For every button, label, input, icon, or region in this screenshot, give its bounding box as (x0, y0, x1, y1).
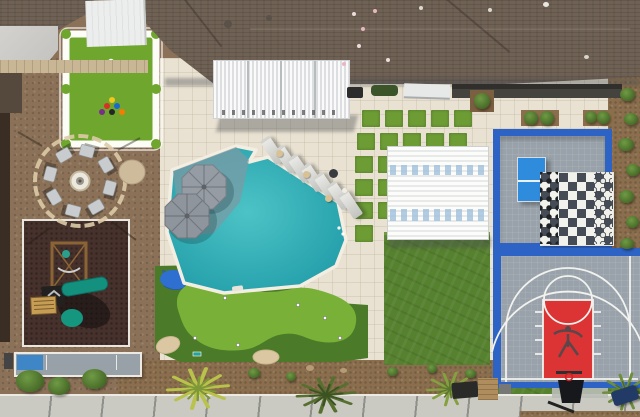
shrub (82, 369, 107, 389)
lawn-billiards-table (60, 28, 162, 150)
roof-ornament (386, 58, 390, 62)
deck-drain (342, 188, 347, 193)
side-table (303, 171, 310, 178)
perimeter-bush (624, 113, 638, 125)
perimeter-bush (626, 216, 639, 228)
roof-vent (419, 6, 423, 10)
storage-box (499, 384, 511, 394)
roof-ornament (373, 9, 377, 13)
roof-vent (266, 15, 272, 21)
roof-ornament (361, 27, 365, 31)
roof-vent (543, 2, 549, 7)
planter-bush (540, 111, 554, 125)
shrub (387, 367, 398, 376)
perimeter-bush (626, 164, 640, 176)
perimeter-bush (619, 190, 634, 203)
shrub (16, 370, 44, 392)
palm-tree (158, 360, 238, 417)
boulder (119, 160, 145, 184)
brick-pillar (478, 378, 498, 400)
roof-ornament (342, 62, 346, 66)
planter-bush (524, 111, 538, 125)
roof-vent (584, 55, 589, 59)
garden-cart (451, 381, 478, 399)
pergola-stripe (390, 209, 486, 221)
planter-bush (585, 111, 597, 123)
planter-bush (597, 111, 610, 124)
roof-vent (488, 8, 492, 12)
hedge (371, 85, 398, 96)
attached-louvered-pergola (213, 60, 350, 119)
side-table (325, 195, 332, 202)
perimeter-bush (620, 238, 634, 249)
pergola-stripe (390, 165, 486, 175)
fire-bowl (329, 169, 338, 178)
swimming-pool (165, 146, 346, 293)
shrub (48, 377, 70, 395)
planter-bush (474, 93, 490, 109)
shrub (248, 368, 260, 378)
play-structure (31, 243, 115, 335)
freestanding-louvered-pergola (387, 146, 489, 240)
perimeter-bush (620, 88, 635, 101)
fire-pit-area (18, 132, 145, 244)
patio-umbrella (165, 194, 209, 238)
palm-tree (288, 370, 364, 417)
roof-vent (224, 20, 232, 28)
neighbor-roof-white (85, 0, 147, 47)
garden-wall (0, 60, 148, 73)
slide-end (61, 309, 83, 327)
grill (347, 87, 363, 98)
basketball-court-lines (492, 256, 640, 382)
perimeter-bush (618, 138, 634, 151)
covered-patio-shade-dark (452, 84, 622, 89)
wall-shadow (0, 73, 22, 113)
outdoor-bar (404, 83, 450, 100)
pergola-beam-furniture (222, 110, 342, 115)
roof-ridge (250, 28, 630, 30)
backyard-aerial-photo (0, 0, 640, 417)
side-table (276, 150, 283, 157)
roof-ornament (352, 12, 356, 16)
roof-ornament (357, 44, 361, 48)
